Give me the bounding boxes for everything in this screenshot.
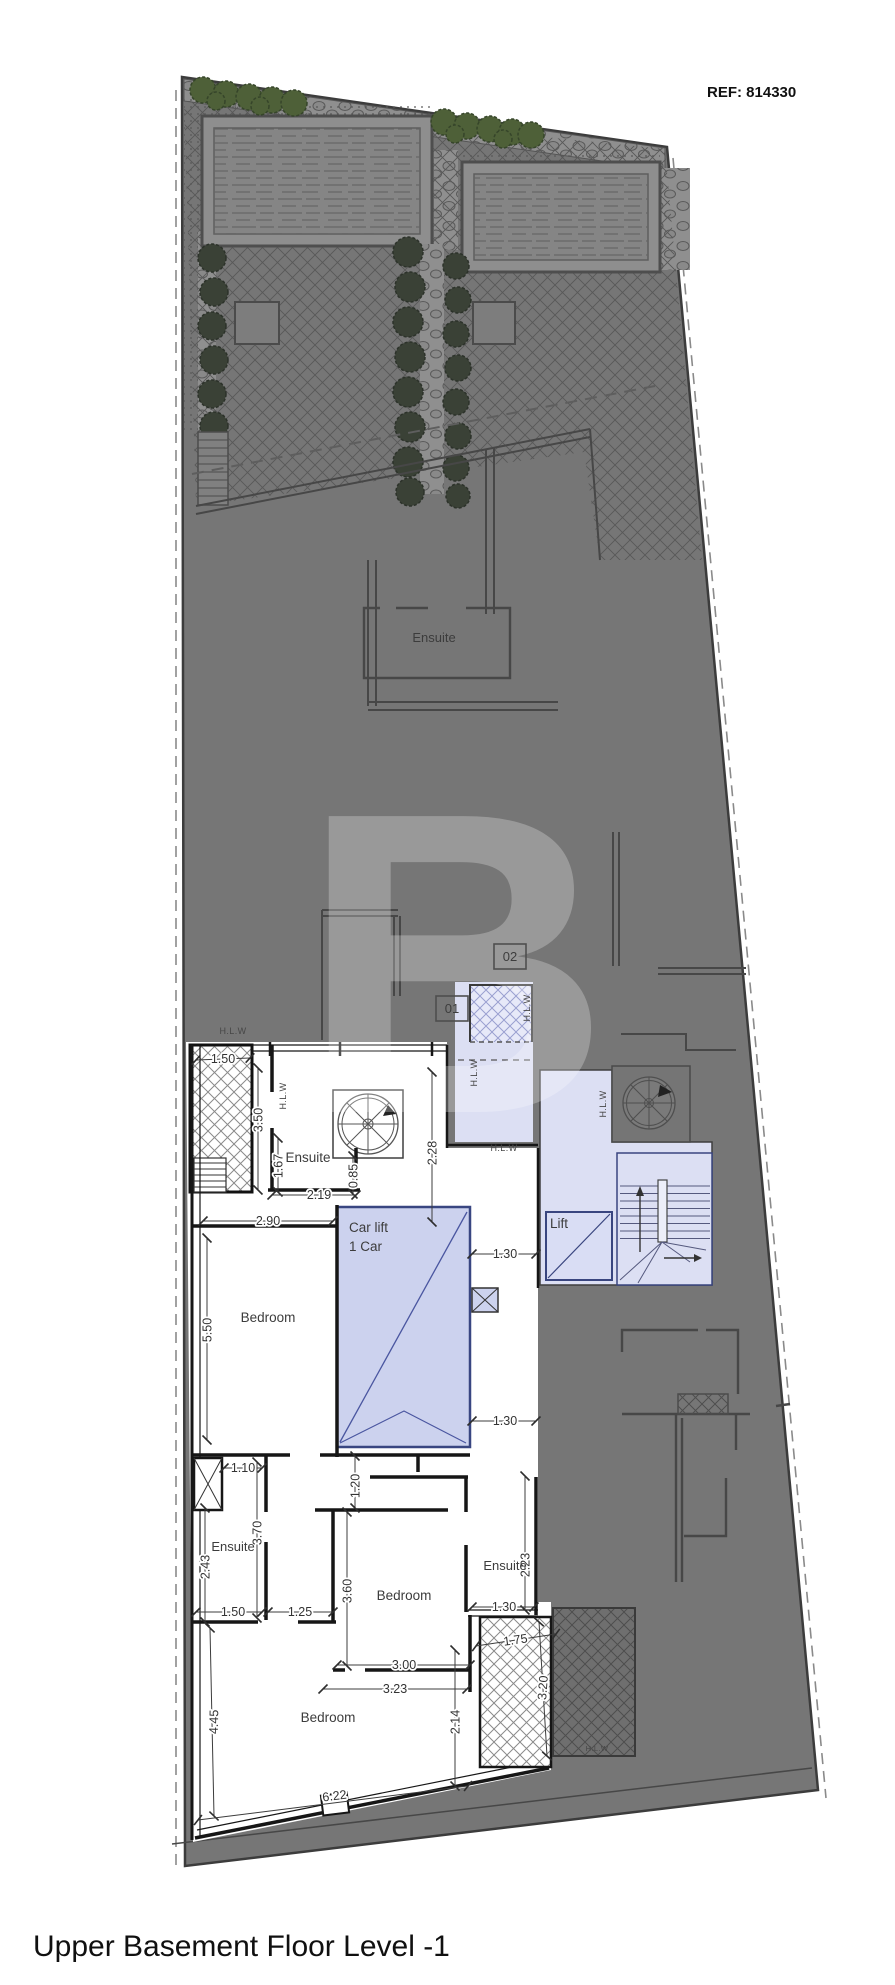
unit-marker-label: 02 <box>503 949 517 964</box>
dimension-label: 2.43 <box>199 1555 213 1579</box>
room-label-ensuite-top: Ensuite <box>412 630 455 645</box>
dimension-label: 1.25 <box>288 1605 312 1619</box>
hlw-label: H.L.W <box>586 1744 609 1753</box>
hlw-label: H.L.W <box>522 994 532 1021</box>
unit-marker-label: 01 <box>445 1001 459 1016</box>
room-label-ensuite-c: Ensuite <box>483 1558 526 1573</box>
room-label-bedroom-mid: Bedroom <box>377 1588 432 1603</box>
dotted-strip <box>462 152 660 161</box>
dimension-label: 2.19 <box>307 1188 331 1202</box>
floor-plan-page: B 1.503.501.670.852.192.282.905.501.301.… <box>0 0 895 1985</box>
staircase <box>617 1153 712 1285</box>
dimension-label: 1.20 <box>349 1474 363 1498</box>
dimension-label: 1.30 <box>493 1247 517 1261</box>
dimension-label: 1.10 <box>231 1461 255 1475</box>
planter-left <box>235 302 279 344</box>
ref-number: REF: 814330 <box>707 84 796 101</box>
dimension-label: 1.30 <box>492 1600 516 1614</box>
room-label-car-lift-line1: Car lift <box>349 1220 388 1235</box>
dimension-label: 3.20 <box>535 1675 551 1700</box>
dimension-label: 3.60 <box>341 1579 355 1603</box>
page-title: Upper Basement Floor Level -1 <box>33 1930 450 1963</box>
small-shaft-x <box>472 1288 498 1312</box>
dimension-label: 2.90 <box>256 1214 280 1228</box>
floor-plan-drawing: B 1.503.501.670.852.192.282.905.501.301.… <box>0 0 895 1985</box>
dimension-label: 1.50 <box>211 1052 235 1066</box>
hlw-label: H.L.W <box>469 1059 479 1086</box>
garden-area <box>184 77 702 560</box>
dimension-label: 3.00 <box>392 1658 416 1672</box>
lightwell-shaft-bottom-gray <box>553 1608 635 1756</box>
dimension-label: 6.22 <box>322 1788 348 1805</box>
planter-right <box>473 302 515 344</box>
dimension-label: 1.30 <box>493 1414 517 1428</box>
dimension-label: 0.85 <box>347 1164 361 1188</box>
dimension-label: 4.45 <box>207 1710 221 1735</box>
dimension-label: 2.28 <box>426 1141 440 1165</box>
room-label-ensuite-b: Ensuite <box>211 1539 254 1554</box>
dimension-label: 1.50 <box>221 1605 245 1619</box>
hlw-label: H.L.W <box>598 1090 608 1117</box>
spiral-stair-right <box>612 1066 690 1142</box>
dimension-label: 3.23 <box>383 1682 407 1696</box>
dotted-strip <box>202 106 432 115</box>
dimension-label: 3.50 <box>252 1108 266 1132</box>
room-label-car-lift-line2: 1 Car <box>349 1239 383 1254</box>
hlw-label: H.L.W <box>219 1026 246 1036</box>
wall-shaft-x-left <box>194 1458 222 1510</box>
watermark-letter: B <box>300 724 611 1204</box>
lightwell-shaft-topleft <box>190 1045 252 1192</box>
dimension-label: 5.50 <box>201 1318 215 1342</box>
hlw-label: H.L.W <box>278 1082 288 1109</box>
dimension-label: 1.67 <box>272 1154 286 1178</box>
room-label-bedroom-bottom: Bedroom <box>301 1710 356 1725</box>
room-label-ensuite-a: Ensuite <box>285 1150 330 1165</box>
room-label-lift: Lift <box>550 1216 568 1231</box>
room-label-bedroom-left: Bedroom <box>241 1310 296 1325</box>
stair-rail <box>658 1180 667 1242</box>
hlw-label: H.L.W <box>490 1143 517 1153</box>
deck-right <box>462 152 660 272</box>
deck-left <box>202 106 432 246</box>
dimension-label: 2.14 <box>449 1710 463 1734</box>
